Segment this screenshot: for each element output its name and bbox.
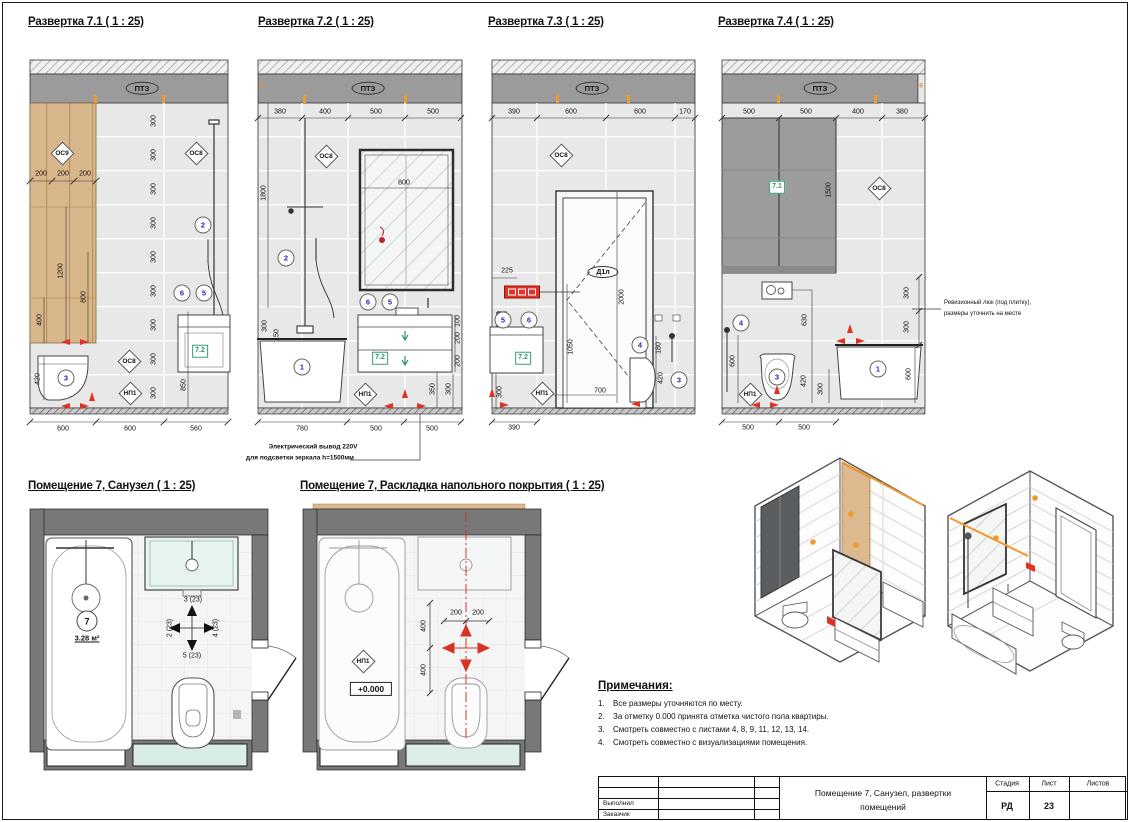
dim-label: 500 — [743, 109, 755, 116]
dim-label: 300 — [446, 383, 453, 395]
sheet-label: Лист — [1041, 781, 1056, 788]
note-item: 4.Смотреть совместно с визуализациями по… — [598, 738, 936, 748]
finish-tag-np1: НП1 — [348, 646, 378, 676]
dim-label: 300 — [151, 285, 158, 297]
dim-label: 300 — [904, 321, 911, 333]
callout-3: 3 — [769, 369, 786, 386]
dim-label: 300 — [262, 320, 269, 332]
dim-label: 300 — [151, 183, 158, 195]
callout-3: 3 — [58, 370, 75, 387]
finish-tag-os9: ОС9 — [47, 138, 77, 168]
isometric-view-1 — [755, 458, 925, 662]
callout-4: 4 — [733, 315, 750, 332]
dim-label: 380 — [896, 109, 908, 116]
dim-label: 300 — [151, 115, 158, 127]
dim-label: 300 — [904, 287, 911, 299]
plan-floor-layout-drawing — [303, 504, 569, 770]
callout-1: 1 — [294, 359, 311, 376]
callout-3: 3 — [671, 372, 688, 389]
stage-value: РД — [1001, 801, 1013, 811]
dim-label: 150 — [274, 329, 281, 341]
dim-label: 200 — [57, 171, 69, 178]
dim-label: 500 — [427, 109, 439, 116]
bathtub-plan-icon — [46, 538, 132, 750]
title-elevation-7-1: Развертка 7.1 ( 1 : 25) — [28, 16, 144, 28]
dim-label: 400 — [37, 314, 44, 326]
dim-label: 300 — [818, 383, 825, 395]
callout-6: 6 — [360, 294, 377, 311]
dim-label: 2000 — [619, 289, 626, 305]
room-number: 7 — [77, 611, 98, 632]
dim-label: 180 — [656, 342, 663, 354]
dim-label: 600 — [906, 368, 913, 380]
dim-label: 200 — [450, 610, 462, 617]
title-plan-sanuzel: Помещение 7, Санузел ( 1 : 25) — [28, 480, 195, 492]
dim-label: 600 — [124, 426, 136, 433]
dim-label: 200 — [455, 332, 462, 344]
finish-tag-np1: НП1 — [350, 379, 380, 409]
sheet-linework — [0, 0, 1130, 822]
callout-5: 5 — [196, 285, 213, 302]
dim-label: 600 — [57, 426, 69, 433]
dim-label: 500 — [370, 109, 382, 116]
elev-ref-5: 5 (23) — [183, 653, 201, 660]
dim-label: 200 — [35, 171, 47, 178]
title-plan-floor-layout: Помещение 7, Раскладка напольного покрыт… — [300, 480, 604, 492]
dim-label: 300 — [151, 251, 158, 263]
dim-label: 200 — [472, 610, 484, 617]
ceiling-tag: ПТЗ — [576, 82, 609, 95]
dim-label: 380 — [274, 109, 286, 116]
note-item: 2.За отметку 0.000 принята отметка чисто… — [598, 712, 936, 722]
finish-tag-os8: ОС8 — [181, 138, 211, 168]
dim-label: 390 — [508, 425, 520, 432]
electric-note-line1: Электрический вывод 220V — [269, 444, 358, 451]
dim-label: 500 — [426, 426, 438, 433]
dim-label: 300 — [151, 149, 158, 161]
dim-label: 300 — [497, 386, 504, 398]
mirror-icon — [360, 150, 453, 290]
callout-2: 2 — [278, 250, 295, 267]
dim-label: 1800 — [261, 185, 268, 201]
dim-label: 420 — [801, 375, 808, 387]
sheet-number: 23 — [1044, 801, 1054, 811]
door-tag: Д1л — [587, 266, 618, 278]
dim-label: 500 — [370, 426, 382, 433]
dim-label: 1050 — [568, 339, 575, 355]
ceiling-tag: ПТЗ — [126, 82, 159, 95]
note-item: 3.Смотреть совместно с листами 4, 8, 9, … — [598, 725, 936, 735]
finish-tag-os8: ОС8 — [311, 141, 341, 171]
floor-level-mark: +0.000 — [350, 682, 392, 696]
dim-label: 1200 — [58, 263, 65, 279]
sheets-label: Листов — [1087, 781, 1110, 788]
note-item: 1.Все размеры уточняются по месту. — [598, 699, 936, 709]
finish-tag-np1: НП1 — [527, 378, 557, 408]
dim-label: 100 — [455, 315, 462, 327]
dim-label: 170 — [679, 109, 691, 116]
revision-hatch-note-line1: Ревизионный люк (под плитку), — [944, 300, 1031, 306]
finish-tag-os8: ОС8 — [114, 346, 144, 376]
dim-label: 420 — [35, 373, 42, 385]
elev-ref-3: 3 (23) — [184, 597, 202, 604]
dim-label: 600 — [730, 355, 737, 367]
vanity-side-icon — [178, 315, 230, 372]
drawing-sheet: Развертка 7.1 ( 1 : 25) ПТЗ 200 200 200 … — [0, 0, 1130, 822]
notes-block: Примечания: 1.Все размеры уточняются по … — [598, 680, 936, 751]
elev-ref-2: 2 (23) — [167, 619, 174, 637]
finish-tag-np1: НП1 — [735, 379, 765, 409]
tile-count-mark: 9 — [919, 83, 923, 90]
dim-label: 560 — [190, 426, 202, 433]
item-tag: 7.1 — [769, 181, 785, 194]
callout-1: 1 — [870, 361, 887, 378]
dim-label: 300 — [151, 319, 158, 331]
callout-6: 6 — [174, 285, 191, 302]
finish-tag-os8: ОС8 — [864, 173, 894, 203]
title-elevation-7-3: Развертка 7.3 ( 1 : 25) — [488, 16, 604, 28]
dim-label: 200 — [455, 355, 462, 367]
dim-label: 600 — [634, 109, 646, 116]
title-elevation-7-4: Развертка 7.4 ( 1 : 25) — [718, 16, 834, 28]
dim-label: 800 — [398, 180, 410, 187]
callout-5: 5 — [495, 312, 512, 329]
callout-4: 4 — [632, 337, 649, 354]
dim-label: 800 — [81, 291, 88, 303]
elevation-7-3-drawing — [489, 60, 698, 425]
item-tag: 7.2 — [192, 345, 208, 358]
dim-label: 300 — [151, 217, 158, 229]
dim-label: 390 — [508, 109, 520, 116]
callout-2: 2 — [195, 217, 212, 234]
title-block: Выполнил Заказчик Помещение 7, Санузел, … — [598, 776, 1126, 820]
title-elevation-7-2: Развертка 7.2 ( 1 : 25) — [258, 16, 374, 28]
dim-label: 400 — [421, 664, 428, 676]
dim-label: 400 — [319, 109, 331, 116]
dim-label: 700 — [594, 388, 606, 395]
dim-label: 850 — [181, 379, 188, 391]
electric-note-line2: для подсветки зеркала h=1500мм — [246, 455, 354, 462]
dim-label: 300 — [151, 387, 158, 399]
stage-label: Стадия — [995, 781, 1019, 788]
dim-label: 420 — [658, 372, 665, 384]
sink-plan-icon — [145, 537, 238, 596]
dim-label: 300 — [151, 353, 158, 365]
ceiling-tag: ПТЗ — [804, 82, 837, 95]
dim-label: 225 — [501, 268, 513, 275]
executor-label: Выполнил — [603, 800, 634, 807]
notes-heading: Примечания: — [598, 680, 936, 692]
shower-glass-icon — [722, 118, 836, 273]
toilet-plan-icon — [172, 678, 214, 748]
power-outlet-icon — [504, 286, 540, 299]
sheet-title-line2: помещений — [860, 802, 906, 812]
ceiling-tag: ПТЗ — [352, 82, 385, 95]
toilet-icon — [782, 602, 808, 628]
dim-label: 600 — [565, 109, 577, 116]
dim-label: 200 — [79, 171, 91, 178]
elev-ref-4: 4 (23) — [213, 619, 220, 637]
callout-6: 6 — [521, 312, 538, 329]
dim-label: 500 — [798, 425, 810, 432]
dim-label: 500 — [800, 109, 812, 116]
dim-label: 350 — [430, 383, 437, 395]
finish-tag-os8: ОС8 — [546, 140, 576, 170]
dim-label: 630 — [802, 314, 809, 326]
callout-5: 5 — [382, 294, 399, 311]
plan-sanuzel-drawing — [30, 509, 296, 770]
revision-hatch-note-line2: размеры уточнить на месте — [944, 311, 1021, 317]
finish-tag-np1: НП1 — [115, 378, 145, 408]
room-area: 3.28 м² — [75, 634, 100, 643]
tile-count-mark: 5 — [259, 83, 263, 90]
dim-label: 500 — [742, 425, 754, 432]
dim-label: 780 — [296, 426, 308, 433]
isometric-view-2 — [948, 471, 1113, 674]
dim-label: 400 — [852, 109, 864, 116]
sheet-title-line1: Помещение 7, Санузел, развертки — [815, 788, 951, 798]
dim-label: 400 — [421, 620, 428, 632]
item-tag: 7.2 — [372, 352, 388, 365]
customer-label: Заказчик — [603, 811, 630, 818]
dim-label: 1500 — [826, 182, 833, 198]
item-tag: 7.2 — [515, 352, 531, 365]
